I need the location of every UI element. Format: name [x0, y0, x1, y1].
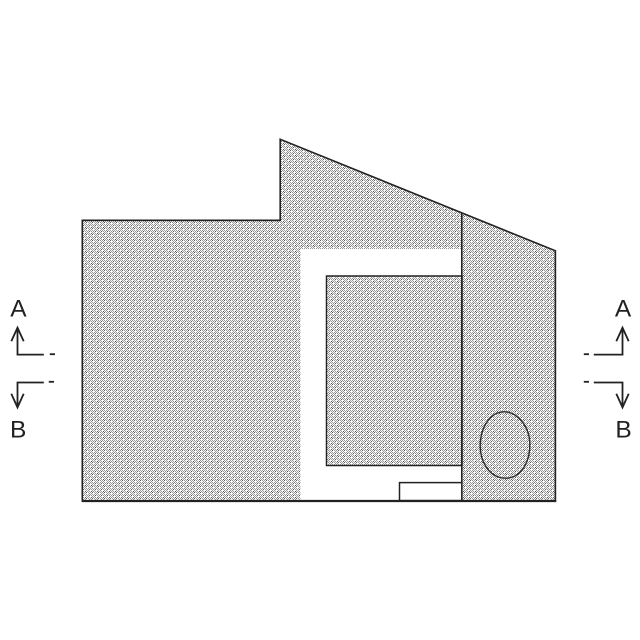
svg-text:A: A: [10, 295, 27, 322]
svg-text:B: B: [615, 417, 631, 444]
svg-text:B: B: [10, 417, 26, 444]
svg-text:A: A: [615, 295, 632, 322]
